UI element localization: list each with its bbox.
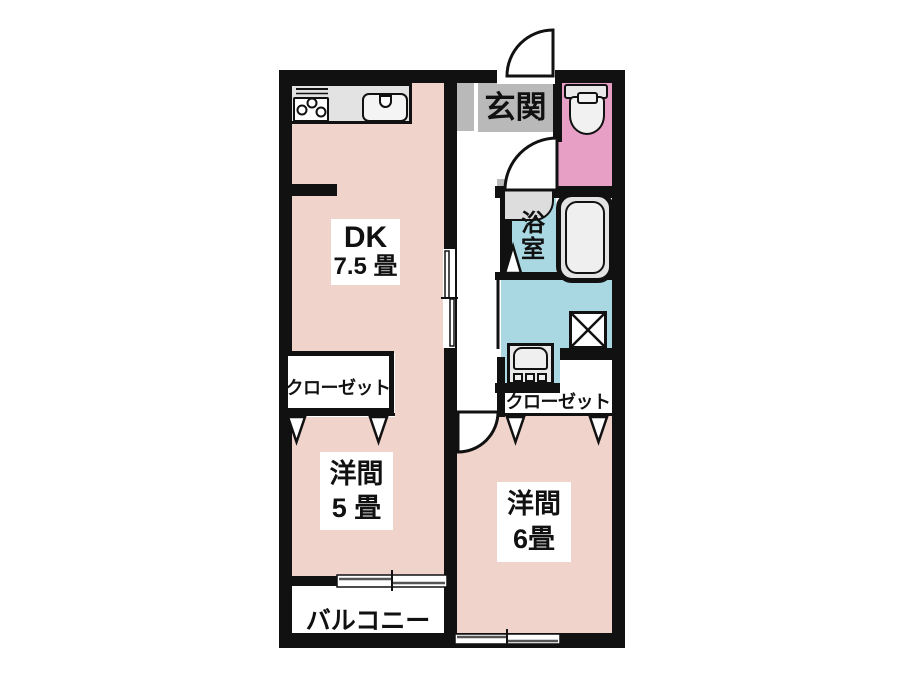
western6-size-label: 6畳	[497, 523, 571, 555]
toilet-door-swing	[505, 138, 557, 190]
western6-door-swing	[458, 412, 498, 452]
bath-label: 浴室	[514, 198, 544, 274]
dk-size-label: 7.5 畳	[331, 252, 400, 282]
closet-right-door-mark	[507, 417, 524, 442]
western5-size-label: 5 畳	[320, 492, 393, 524]
burner-icon	[308, 99, 317, 108]
balcony-label: バルコニー	[292, 606, 444, 636]
dk-sliding-panel	[450, 299, 454, 346]
closet-right-door-mark	[590, 417, 607, 442]
burner-icon	[317, 108, 326, 117]
floor-plan: 玄関 DK 7.5 畳 浴室 クローゼット クローゼット 洋間 5 畳 洋間 6…	[0, 0, 900, 675]
dk-name-label: DK	[331, 222, 400, 254]
western5-name-label: 洋間	[320, 458, 393, 490]
closet-right-label: クローゼット	[506, 391, 610, 413]
entrance-label: 玄関	[476, 88, 555, 128]
burner-icon	[298, 106, 307, 115]
closet-left-door-mark	[370, 417, 387, 442]
door-window-symbols	[0, 0, 900, 675]
closet-left-label: クローゼット	[287, 374, 389, 402]
dk-sliding-panel	[445, 251, 449, 298]
entrance-door-swing	[507, 30, 553, 76]
closet-left-door-mark	[288, 417, 305, 442]
western6-name-label: 洋間	[497, 488, 571, 520]
